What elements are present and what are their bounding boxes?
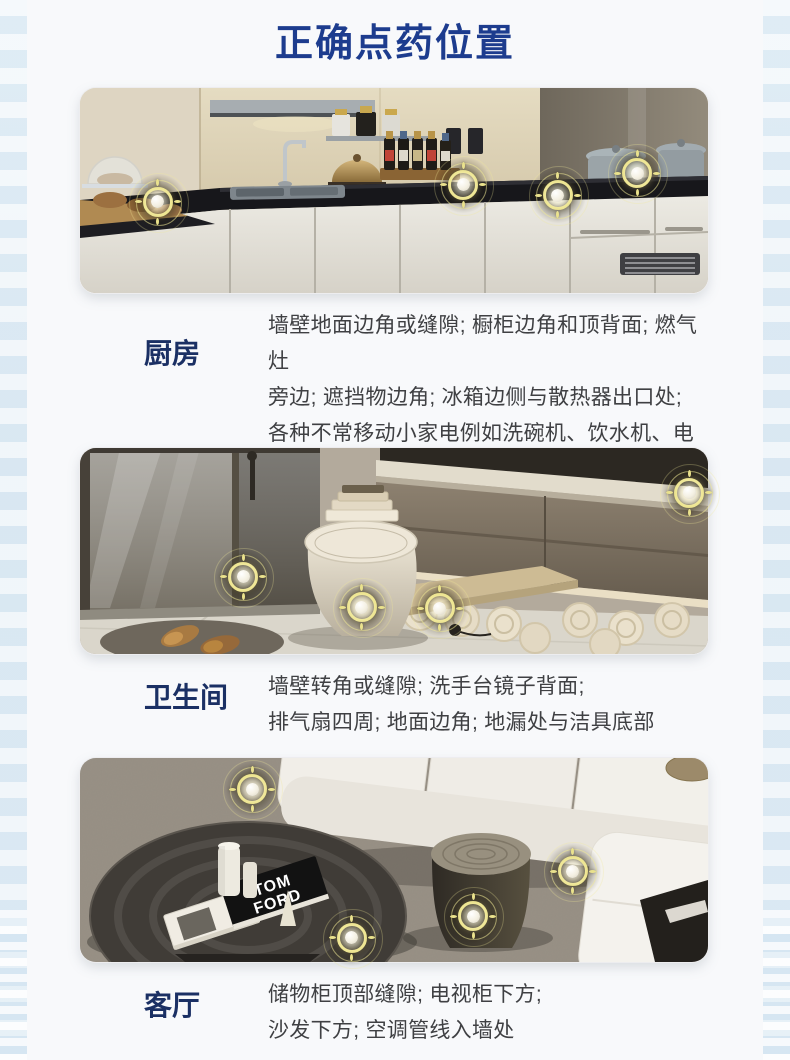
living-room-marker-layer [80,758,708,962]
section-label-bathroom: 卫生间 [80,669,268,741]
kitchen-marker-layer [80,88,708,293]
living-room-caption: 客厅 储物柜顶部缝隙; 电视柜下方; 沙发下方; 空调管线入墙处 [80,977,708,1049]
living-room-desc-line: 沙发下方; 空调管线入墙处 [268,1013,708,1049]
kitchen-photo-card [80,88,708,293]
bathroom-desc-line: 排气扇四周; 地面边角; 地漏处与洁具底部 [268,705,708,741]
living-room-section: TOM FORD [80,758,708,1049]
bathroom-desc-line: 墙壁转角或缝隙; 洗手台镜子背面; [268,669,708,705]
bathroom-section: 卫生间 墙壁转角或缝隙; 洗手台镜子背面; 排气扇四周; 地面边角; 地漏处与洁… [80,448,708,741]
bathroom-caption: 卫生间 墙壁转角或缝隙; 洗手台镜子背面; 排气扇四周; 地面边角; 地漏处与洁… [80,669,708,741]
page: 正确点药位置 [0,0,790,1060]
bathroom-description: 墙壁转角或缝隙; 洗手台镜子背面; 排气扇四周; 地面边角; 地漏处与洁具底部 [268,669,708,741]
living-room-photo-card: TOM FORD [80,758,708,962]
kitchen-desc-line: 墙壁地面边角或缝隙; 橱柜边角和顶背面; 燃气灶 [268,308,708,380]
kitchen-desc-line: 旁边; 遮挡物边角; 冰箱边侧与散热器出口处; [268,380,708,416]
living-room-desc-line: 储物柜顶部缝隙; 电视柜下方; [268,977,708,1013]
left-decor-strip [0,0,27,1060]
page-title: 正确点药位置 [27,12,763,67]
living-room-description: 储物柜顶部缝隙; 电视柜下方; 沙发下方; 空调管线入墙处 [268,977,708,1049]
bathroom-photo-card [80,448,708,654]
content-panel: 正确点药位置 [27,0,763,1060]
right-decor-strip [762,0,790,1060]
section-label-living-room: 客厅 [80,977,268,1049]
bathroom-marker-layer [80,448,708,654]
